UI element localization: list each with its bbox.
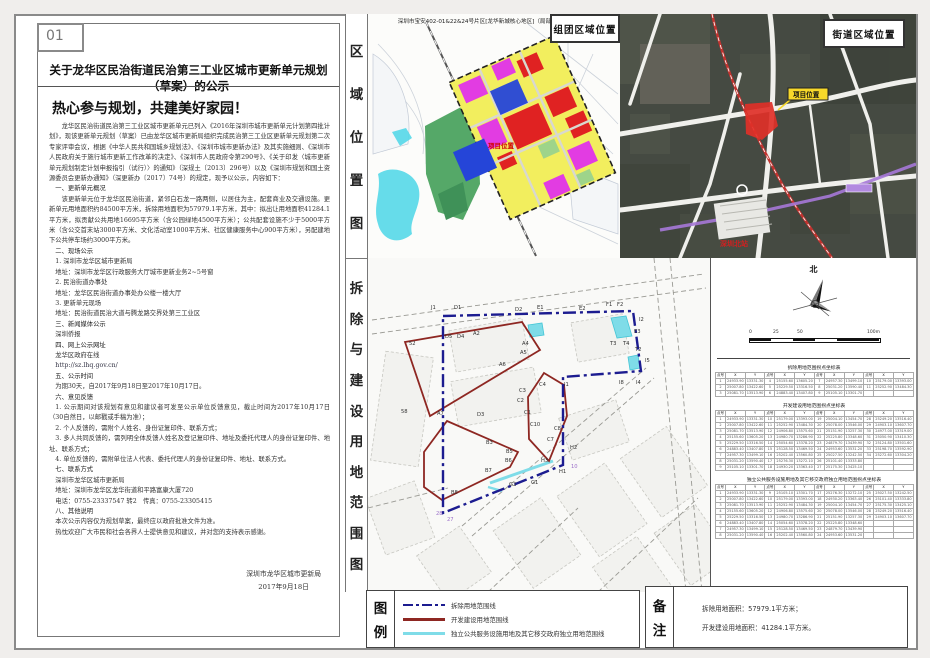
section-heading: 二、现场公示 [49, 247, 330, 257]
zoning-map-graphic: 项目位置 [368, 14, 620, 258]
notice-document: 01 关于龙华区民治街道民治第三工业区城市更新单元规划（草案）的公示 热心参与规… [37, 23, 340, 637]
street-location-corner-label: 街道区域位置 [823, 19, 905, 48]
doc-line: 为期30天，自2017年9月18日至2017年10月17日。 [49, 382, 330, 392]
section-heading: 六、意见反馈 [49, 393, 330, 403]
coordinate-tables: 拆除用地范围拐点坐标表点号XY点号XY点号XY点号XY124933.901333… [715, 364, 913, 544]
parcel-label: A4 [522, 341, 530, 347]
scale-bar: 02550100m [749, 330, 881, 344]
region-map-side-label: 区域位置图 [345, 14, 368, 258]
parcel-label: B5 [506, 449, 513, 455]
notice-signature: 深圳市龙华区城市更新局 [246, 568, 321, 581]
remark-line: 开发建设用地面积：41284.1平方米。 [702, 622, 907, 632]
parcel-label: F1 [606, 302, 612, 308]
legend-swatch-dashdot [403, 604, 445, 607]
legend-label: 独立公共服务设施用地及其它移交政府独立用地范围线 [451, 629, 604, 638]
doc-line: 地址：深圳市龙华区龙华街道和平路富康大厦720 [49, 486, 330, 496]
project-site-tag: 项目位置 [788, 88, 828, 100]
doc-line: 热忱欢迎广大市民和社会各界人士提供意见和建议，并对您的支持表示感谢。 [49, 528, 330, 538]
section-heading: 四、网上公示网址 [49, 341, 330, 351]
parcel-label: D1 [454, 305, 461, 311]
parcel-label: A6 [499, 362, 506, 368]
satellite-map-graphic: 深圳北站 项目位置 [620, 14, 916, 258]
parcel-label: G2 [509, 482, 516, 488]
station-label: 深圳北站 [720, 239, 748, 248]
doc-line: 深圳侨报 [49, 330, 330, 340]
demolition-construction-map: J1D1D2E1E2F1F2I2E3T3T4T2I5I8I4I1D5D4A2A4… [368, 258, 916, 592]
parcel-label: I4 [636, 380, 642, 386]
scale-tick: 0 [749, 330, 752, 335]
street-map-site-label: 项目位置 [793, 90, 820, 99]
legend-side-label: 图例 [367, 591, 395, 647]
section-heading: 一、更新单元概况 [49, 184, 330, 194]
parcel-label: C10 [530, 422, 540, 428]
notice-url-link[interactable]: http://sz.lhq.gov.cn/ [49, 361, 330, 371]
remarks-side-label: 备注 [646, 587, 674, 647]
parcel-label: C8 [554, 426, 561, 432]
parcel-label: 10 [571, 464, 578, 470]
parcel-label: A7 [437, 411, 444, 417]
parcel-label: D2 [515, 307, 522, 313]
doc-line: 2. 个人反馈的，需附个人姓名、身份证复印件、联系方式； [49, 424, 330, 434]
remarks-lines: 拆除用地面积：57979.1平方米；开发建设用地面积：41284.1平方米。 [674, 587, 907, 647]
parcel-label: D3 [477, 412, 484, 418]
coordinate-panel: 北 02550100m 拆除用地 [710, 258, 916, 592]
legend-items: 拆除用地范围线开发建设用地范围线独立公共服务设施用地及其它移交政府独立用地范围线 [395, 591, 639, 647]
notice-date: 2017年9月18日 [246, 581, 321, 594]
notice-signature-block: 深圳市龙华区城市更新局 2017年9月18日 [246, 568, 321, 594]
page-number: 01 [46, 28, 64, 44]
doc-line: 地址：民治街道民治大道与腾龙路交界处第三工业区 [49, 309, 330, 319]
legend-item: 拆除用地范围线 [403, 601, 631, 610]
parcel-label: A2 [473, 331, 480, 337]
parcel-label: B3 [486, 440, 493, 446]
parcel-label: B8 [451, 490, 458, 496]
parcel-label: A5 [520, 350, 527, 356]
doc-line: 本次公示内容仅为规划草案，最终应以政府批准文件为准。 [49, 517, 330, 527]
region-location-map: 项目位置 深圳市宝安402-01&22&24号片区[龙华新城核心地区]（局部）法… [368, 14, 621, 258]
scale-tick: 50 [797, 330, 803, 335]
doc-line: 龙华区政府在线 [49, 351, 330, 361]
legend-label: 拆除用地范围线 [451, 601, 496, 610]
section-heading: 七、联系方式 [49, 465, 330, 475]
doc-line: 地址：深圳市龙华区行政服务大厅城市更新业务2~5号窗 [49, 268, 330, 278]
notice-title: 关于龙华区民治街道民治第三工业区城市更新单元规划（草案）的公示 [42, 62, 335, 94]
parcel-label: E2 [579, 306, 586, 312]
doc-line: 深圳市龙华区城市更新局 [49, 476, 330, 486]
doc-line: 1. 公示期间对该规划有意见和建议者可发至公示单位反馈意见，截止时间为2017年… [49, 403, 330, 424]
doc-line: 4. 单位反馈的，需附单位法人代表、委托代理人的身份证复印件、地址、联系方式。 [49, 455, 330, 465]
parcel-label: F2 [617, 302, 623, 308]
street-location-map: 深圳北站 项目位置 街道区域位置 [620, 14, 916, 258]
parcel-label: 58 [401, 409, 408, 415]
legend-swatch-solid [403, 618, 445, 621]
notice-headline: 热心参与规划，共建美好家园！ [52, 98, 248, 118]
parcel-label: C3 [519, 388, 526, 394]
notice-body: 龙华区民治街道民治第三工业区城市更新单元已列入《2016年深圳市城市更新单元计划… [49, 122, 330, 538]
scale-tick: 100m [867, 330, 880, 335]
legend-item: 独立公共服务设施用地及其它移交政府独立用地范围线 [403, 629, 631, 638]
doc-line: 3. 更新单元现场 [49, 299, 330, 309]
section-heading: 三、新闻媒体公示 [49, 320, 330, 330]
parcel-label: I1 [564, 382, 569, 388]
parcel-label: 52 [409, 341, 416, 347]
page-number-box: 01 [37, 23, 84, 52]
cadastral-map-graphic: J1D1D2E1E2F1F2I2E3T3T4T2I5I8I4I1D5D4A2A4… [368, 258, 710, 592]
parcel-label: I5 [645, 358, 650, 364]
remarks: 备注 拆除用地面积：57979.1平方米；开发建设用地面积：41284.1平方米… [645, 586, 908, 648]
parcel-label: J1 [430, 305, 436, 311]
parcel-label: 28 [436, 511, 443, 517]
parcel-label: T2 [634, 347, 641, 353]
parcel-label: C1 [524, 410, 531, 416]
parcel-label: D4 [457, 334, 465, 340]
parcel-label: G1 [531, 480, 538, 486]
coordinate-table: 开发建设用地范围拐点坐标表点号XY点号XY点号XY点号XY124933.9013… [715, 402, 913, 471]
parcel-label: 27 [447, 517, 454, 523]
scale-tick: 25 [773, 330, 779, 335]
compass-rose-icon [777, 272, 853, 328]
coordinate-table: 独立公共服务设施用地及其它移交政府独立用地范围拐点坐标表点号XY点号XY点号XY… [715, 476, 913, 539]
parcel-label: H1 [559, 469, 566, 475]
coordinate-table: 拆除用地范围拐点坐标表点号XY点号XY点号XY点号XY124933.901333… [715, 364, 913, 397]
parcel-label: C4 [539, 382, 547, 388]
doc-line: 地址：龙华区民治街道办事处办公楼一楼大厅 [49, 289, 330, 299]
parcel-label: C2 [517, 398, 524, 404]
parcel-label: H3 [541, 458, 548, 464]
region-map-site-label: 项目位置 [488, 141, 515, 150]
parcel-label: E3 [634, 329, 641, 335]
demolition-map-side-label: 拆除与建设用地范围图 [345, 258, 368, 592]
doc-line: 3. 多人共同反馈的，需列明全体反馈人姓名及登记复印件、地址及委托代理人的身份证… [49, 434, 330, 455]
legend-swatch-solid [403, 632, 445, 635]
cluster-location-corner-label: 组团区域位置 [550, 14, 620, 43]
section-heading: 八、其他说明 [49, 507, 330, 517]
section-heading: 五、公示时间 [49, 372, 330, 382]
parcel-label: D5 [445, 334, 452, 340]
parcel-label: I8 [619, 380, 624, 386]
parcel-label: B7 [485, 468, 492, 474]
doc-line: 2. 民治街道办事处 [49, 278, 330, 288]
parcel-label: H2 [570, 445, 577, 451]
parcel-label: C7 [547, 437, 554, 443]
remark-line: 拆除用地面积：57979.1平方米； [702, 603, 907, 613]
planning-notice-screenshot: { "page": {"number": "01"}, "notice": { … [0, 0, 930, 658]
doc-line: 该更新单元位于龙华区民治街道，紧邻白石龙一路两侧，以居住为主，配套商业及交通设施… [49, 195, 330, 247]
doc-line: 1. 深圳市龙华区城市更新局 [49, 257, 330, 267]
legend: 图例 拆除用地范围线开发建设用地范围线独立公共服务设施用地及其它移交政府独立用地… [366, 590, 640, 648]
parcel-label: B6 [505, 458, 512, 464]
legend-label: 开发建设用地范围线 [451, 615, 509, 624]
title-rule [38, 86, 339, 87]
parcel-label: T4 [622, 341, 630, 347]
parcel-label: I2 [639, 317, 644, 323]
doc-line: 龙华区民治街道民治第三工业区城市更新单元已列入《2016年深圳市城市更新单元计划… [49, 122, 330, 184]
legend-item: 开发建设用地范围线 [403, 615, 631, 624]
parcel-label: E1 [537, 305, 544, 311]
doc-line: 电话：0755-23337547 转2 传真：0755-23305415 [49, 497, 330, 507]
parcel-label: T3 [609, 341, 616, 347]
